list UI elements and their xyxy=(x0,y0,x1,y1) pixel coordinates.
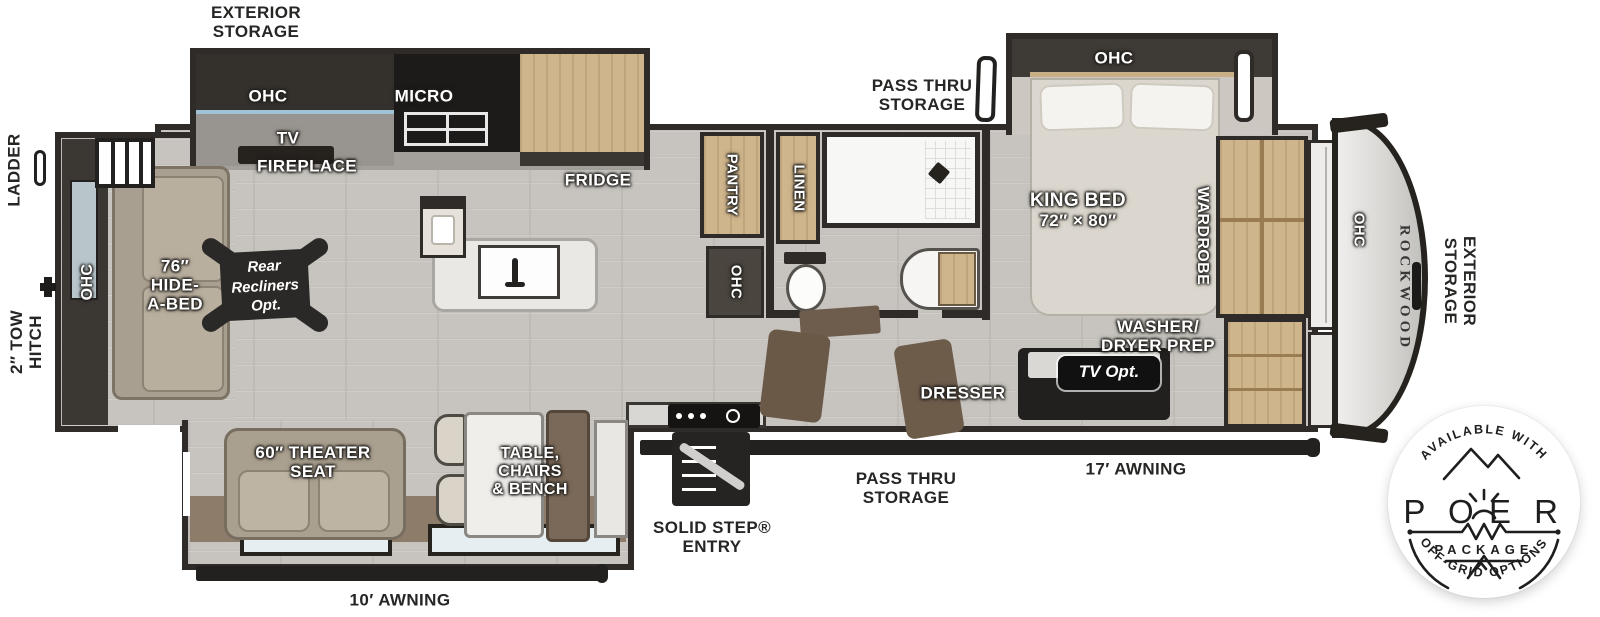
label-pass-thru-storage-top: PASS THRU STORAGE xyxy=(872,76,973,114)
label-fridge: FRIDGE xyxy=(565,170,632,189)
label-exterior-storage-top: EXTERIOR STORAGE xyxy=(211,3,301,41)
label-awning-10: 10′ AWNING xyxy=(350,590,451,609)
label-hide-a-bed: 76″ HIDE- A-BED xyxy=(147,256,203,313)
pillow xyxy=(1129,83,1215,132)
badge-arc-top: AVAILABLE WITH xyxy=(1417,422,1550,463)
label-rockwood-logo: ROCKWOOD xyxy=(1396,225,1413,351)
bath-wall xyxy=(982,128,990,320)
entry-steps xyxy=(672,432,750,506)
label-ohc-front: OHC xyxy=(1350,213,1367,248)
svg-text:AVAILABLE WITH: AVAILABLE WITH xyxy=(1417,422,1550,463)
shower xyxy=(822,132,980,228)
storage-door-handle xyxy=(1412,262,1421,310)
label-theater-seat: 60″ THEATER SEAT xyxy=(255,443,370,481)
cooktop-icon xyxy=(668,404,760,428)
label-exterior-storage-right: EXTERIOR STORAGE xyxy=(1441,236,1479,326)
faucet-icon xyxy=(505,282,525,287)
kitchen-cart xyxy=(420,196,466,258)
label-tv: TV xyxy=(277,128,300,147)
bath-wall xyxy=(942,310,990,318)
bed-ohc-shelf xyxy=(1030,72,1235,77)
tv-opt-label: TV Opt. xyxy=(1079,362,1139,381)
toilet xyxy=(784,252,826,264)
kitchen-ohc-cabinet xyxy=(196,54,394,112)
tow-hitch-icon xyxy=(44,277,52,297)
awning-10-end xyxy=(596,564,608,583)
label-micro: MICRO xyxy=(395,86,454,105)
power-package-logo: AVAILABLE WITH OFF-GRID OPTIONS P O E R … xyxy=(1388,406,1580,598)
label-ladder: LADDER xyxy=(4,133,23,206)
label-washer-dryer: WASHER/ DRYER PREP xyxy=(1101,317,1215,355)
awning-10-bar xyxy=(196,566,606,581)
fridge-cabinet xyxy=(520,54,644,152)
grab-handle-icon xyxy=(34,150,46,186)
kitchen-counter-dark xyxy=(520,152,644,166)
label-dinette: TABLE, CHAIRS & BENCH xyxy=(492,445,568,499)
bath-wall xyxy=(766,128,774,318)
mountains-icon xyxy=(1444,449,1519,479)
label-ohc-kitchen: OHC xyxy=(249,86,288,105)
cap-trim xyxy=(1329,423,1388,444)
faucet-icon xyxy=(512,258,518,284)
label-solid-step-entry: SOLID STEP® ENTRY xyxy=(653,518,771,556)
label-wardrobe: WARDROBE xyxy=(1193,187,1211,285)
dinette-cabinet xyxy=(594,420,628,538)
label-awning-17: 17′ AWNING xyxy=(1086,459,1187,478)
rear-recliners-box: Rear Recliners Opt. xyxy=(219,249,310,322)
dinette-chair xyxy=(434,414,466,466)
label-king-bed: KING BED 72″ × 80″ xyxy=(1030,190,1126,230)
desk-chair xyxy=(759,329,831,424)
island-sink xyxy=(478,245,560,299)
tv-opt-badge: TV Opt. xyxy=(1058,356,1160,390)
floorplan: TV Opt. xyxy=(0,0,1600,617)
label-tow-hitch: 2″ TOW HITCH xyxy=(7,310,45,374)
ladder-icon xyxy=(95,138,155,188)
pass-thru-door-icon xyxy=(975,56,997,123)
label-dresser: DRESSER xyxy=(921,383,1006,402)
label-pantry: PANTRY xyxy=(723,154,740,216)
slide-window xyxy=(183,452,190,516)
vanity-counter xyxy=(938,252,976,306)
wardrobe-cabinet xyxy=(1216,136,1308,318)
label-linen: LINEN xyxy=(790,165,807,212)
label-fireplace: FIREPLACE xyxy=(257,156,357,175)
label-ohc-bed: OHC xyxy=(1095,48,1134,67)
label-ohc-rear: OHC xyxy=(79,264,97,301)
chest-of-drawers xyxy=(1224,318,1306,428)
bedroom-window xyxy=(1234,50,1254,122)
power-package-badge: AVAILABLE WITH OFF-GRID OPTIONS P O E R … xyxy=(1388,406,1580,598)
label-ohc-pantry: OHC xyxy=(727,265,744,300)
awning-17-end xyxy=(1306,438,1320,457)
rear-slide-window xyxy=(118,425,180,432)
label-pass-thru-storage-bottom: PASS THRU STORAGE xyxy=(856,469,957,507)
pillow xyxy=(1039,83,1125,132)
toilet-bowl xyxy=(786,264,826,312)
